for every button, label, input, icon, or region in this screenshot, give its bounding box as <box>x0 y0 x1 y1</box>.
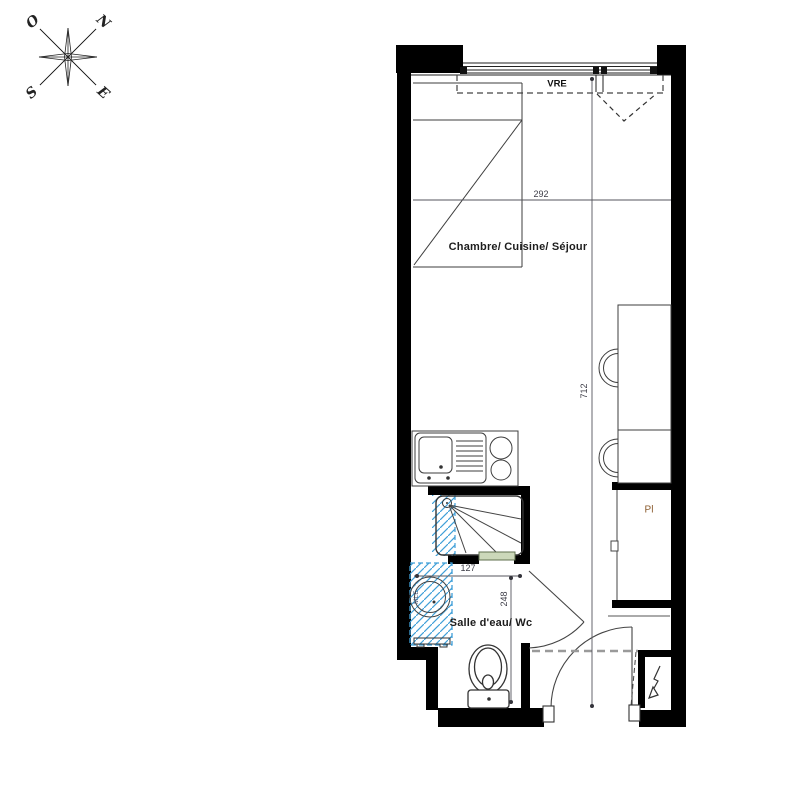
bathroom-door-swing <box>529 622 584 648</box>
toilet-tank-dot <box>487 697 491 701</box>
wall-shower-bottom-right <box>514 555 530 564</box>
washing-machine-dot <box>433 601 436 604</box>
wall-bottom-right <box>639 710 686 727</box>
electrical-panel-closet <box>631 652 660 706</box>
shower <box>432 495 523 560</box>
compass-spike-east <box>68 54 97 61</box>
dim-line-248 <box>509 576 513 704</box>
shower-spray-lines <box>449 505 521 553</box>
toilet-bowl-detail <box>483 675 494 689</box>
toilet <box>468 645 509 708</box>
entrance-door-jamb-left <box>543 706 554 722</box>
kitchen-hob <box>490 437 512 480</box>
bathroom-door-leaf <box>529 571 584 622</box>
table <box>618 305 671 483</box>
dim-line-712 <box>590 77 594 708</box>
main-room-label: Chambre/ Cuisine/ Séjour <box>449 241 588 253</box>
closet <box>608 490 670 616</box>
washing-machine-label: MLE <box>414 590 420 604</box>
wall-right <box>671 45 686 727</box>
chair-bottom <box>599 439 618 477</box>
bed <box>413 83 522 267</box>
lightning-bolt-icon <box>649 666 660 698</box>
window-opening-indicator <box>597 94 656 121</box>
dim-text-292: 292 <box>533 189 548 199</box>
closet-label: Pl <box>645 505 654 516</box>
wall-top-left-block <box>396 45 463 73</box>
kitchen-counter <box>412 431 518 486</box>
wall-bottom-left-step-h <box>397 647 438 660</box>
dim-text-712: 712 <box>579 383 589 398</box>
kitchen-sink <box>415 433 486 483</box>
wall-bottom-left <box>438 708 544 727</box>
table-and-chairs <box>599 305 671 483</box>
floorplan-canvas: O N S E <box>0 0 796 800</box>
sink-drainboard <box>456 441 483 471</box>
compass-spike-north <box>65 28 72 57</box>
shower-drain-dot <box>446 502 448 504</box>
sink-tap-dot <box>446 476 450 480</box>
chair-top <box>599 349 618 387</box>
compass-letter-south: S <box>23 84 41 103</box>
wall-techcloset-left <box>638 650 645 708</box>
wall-left <box>397 70 411 660</box>
wall-closet-bottom <box>612 600 672 608</box>
sink-tap-dot <box>427 476 431 480</box>
sink-basin <box>419 437 452 473</box>
entrance-door-jamb-right <box>629 705 640 721</box>
floorplan-drawing: O N S E <box>0 0 796 800</box>
shutter-label: VRE <box>547 79 567 90</box>
bathroom-door <box>529 571 584 648</box>
wall-bottom-left-step-v <box>426 660 438 710</box>
shower-sill <box>479 552 515 560</box>
dim-text-127: 127 <box>460 563 475 573</box>
wall-bathroom-top <box>428 486 530 495</box>
closet-hinge-notch <box>611 541 618 551</box>
sink-drain-dot <box>439 465 443 469</box>
compass-spike-south <box>65 57 72 86</box>
wall-bathroom-door-stub <box>521 643 530 708</box>
compass-letter-east: E <box>93 83 113 103</box>
compass-spike-west <box>39 54 68 61</box>
bathroom-label: Salle d'eau/ Wc <box>450 617 533 629</box>
dim-text-248: 248 <box>499 591 509 606</box>
compass-rose: O N S E <box>23 11 114 103</box>
